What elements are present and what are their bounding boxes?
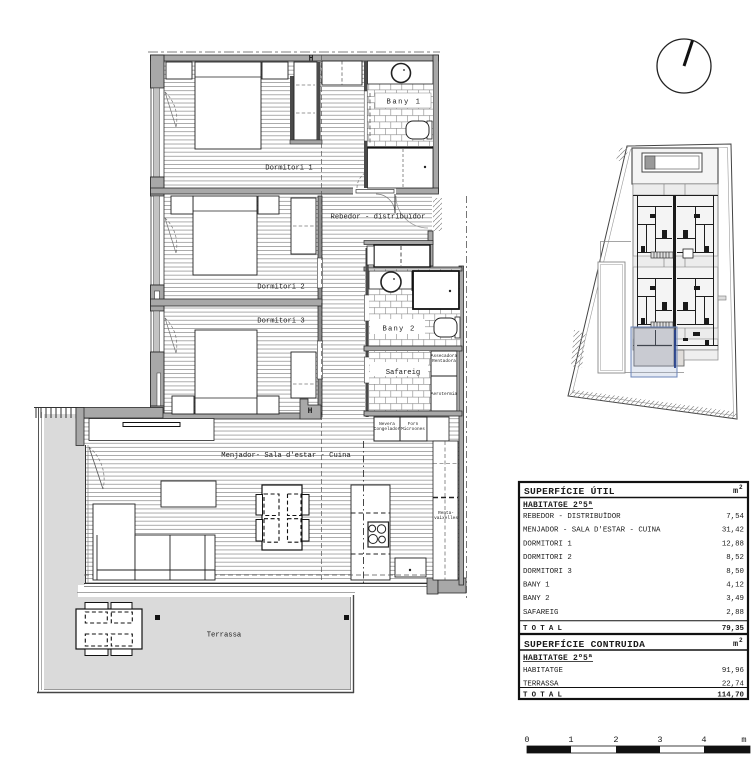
svg-text:4,12: 4,12 [726, 582, 744, 590]
svg-text:BANY 2: BANY 2 [523, 595, 550, 603]
svg-text:SUPERFÍCIE ÚTIL: SUPERFÍCIE ÚTIL [524, 486, 615, 497]
svg-text:3: 3 [657, 735, 662, 745]
svg-text:DORMITORI 1: DORMITORI 1 [523, 540, 572, 548]
svg-text:4: 4 [701, 735, 706, 745]
svg-text:Congelador: Congelador [374, 427, 401, 432]
svg-text:Rebedor - distribuïdor: Rebedor - distribuïdor [331, 214, 426, 222]
svg-text:SUPERFÍCIE CONTRUIDA: SUPERFÍCIE CONTRUIDA [524, 639, 645, 650]
svg-text:vaixelles: vaixelles [434, 516, 458, 521]
svg-text:2: 2 [739, 637, 743, 644]
svg-text:8,50: 8,50 [726, 568, 744, 576]
svg-text:Microones: Microones [401, 427, 425, 432]
svg-text:Bany 1: Bany 1 [387, 99, 422, 107]
svg-text:HABITATGE 2º5ª: HABITATGE 2º5ª [523, 501, 593, 510]
svg-text:m: m [741, 735, 746, 745]
svg-text:Terrassa: Terrassa [207, 632, 242, 640]
svg-text:Safareig: Safareig [386, 369, 421, 377]
svg-text:Menjador- Sala d'estar - Cuina: Menjador- Sala d'estar - Cuina [221, 452, 351, 460]
svg-text:DORMITORI 3: DORMITORI 3 [523, 568, 572, 576]
svg-text:TERRASSA: TERRASSA [523, 681, 559, 689]
svg-text:79,35: 79,35 [722, 625, 745, 633]
svg-text:HABITATGE: HABITATGE [523, 667, 563, 675]
svg-text:2: 2 [613, 735, 618, 745]
svg-text:22,74: 22,74 [722, 681, 745, 689]
svg-text:2,88: 2,88 [726, 609, 744, 617]
svg-text:Rentadora: Rentadora [432, 359, 456, 364]
svg-text:114,70: 114,70 [717, 692, 744, 700]
svg-text:0: 0 [524, 735, 529, 745]
svg-text:Dormitori 1: Dormitori 1 [265, 165, 312, 173]
svg-text:BANY 1: BANY 1 [523, 582, 550, 590]
svg-text:91,96: 91,96 [722, 667, 744, 675]
svg-text:Dormitori 2: Dormitori 2 [257, 284, 304, 292]
svg-text:3,49: 3,49 [726, 595, 744, 603]
svg-text:31,42: 31,42 [722, 527, 744, 535]
svg-text:m: m [733, 486, 738, 496]
svg-text:12,88: 12,88 [722, 540, 744, 548]
svg-text:SAFAREIG: SAFAREIG [523, 609, 558, 617]
svg-text:TOTAL: TOTAL [523, 692, 566, 700]
svg-text:1: 1 [568, 735, 573, 745]
svg-text:TOTAL: TOTAL [523, 625, 566, 633]
svg-text:8,52: 8,52 [726, 554, 744, 562]
svg-text:H: H [309, 55, 314, 64]
svg-text:HABITATGE 2º5ª: HABITATGE 2º5ª [523, 654, 593, 663]
svg-text:Aerotermia: Aerotermia [431, 392, 458, 397]
svg-text:REBEDOR - DISTRIBUÏDOR: REBEDOR - DISTRIBUÏDOR [523, 512, 621, 521]
svg-text:Bany 2: Bany 2 [382, 326, 415, 334]
svg-text:2: 2 [739, 484, 743, 491]
svg-text:m: m [733, 639, 738, 649]
svg-text:MENJADOR - SALA D'ESTAR - CUIN: MENJADOR - SALA D'ESTAR - CUINA [523, 527, 661, 535]
svg-text:H: H [308, 407, 313, 416]
svg-text:DORMITORI 2: DORMITORI 2 [523, 554, 572, 562]
svg-text:Dormitori 3: Dormitori 3 [257, 318, 304, 326]
svg-text:7,54: 7,54 [726, 513, 744, 521]
